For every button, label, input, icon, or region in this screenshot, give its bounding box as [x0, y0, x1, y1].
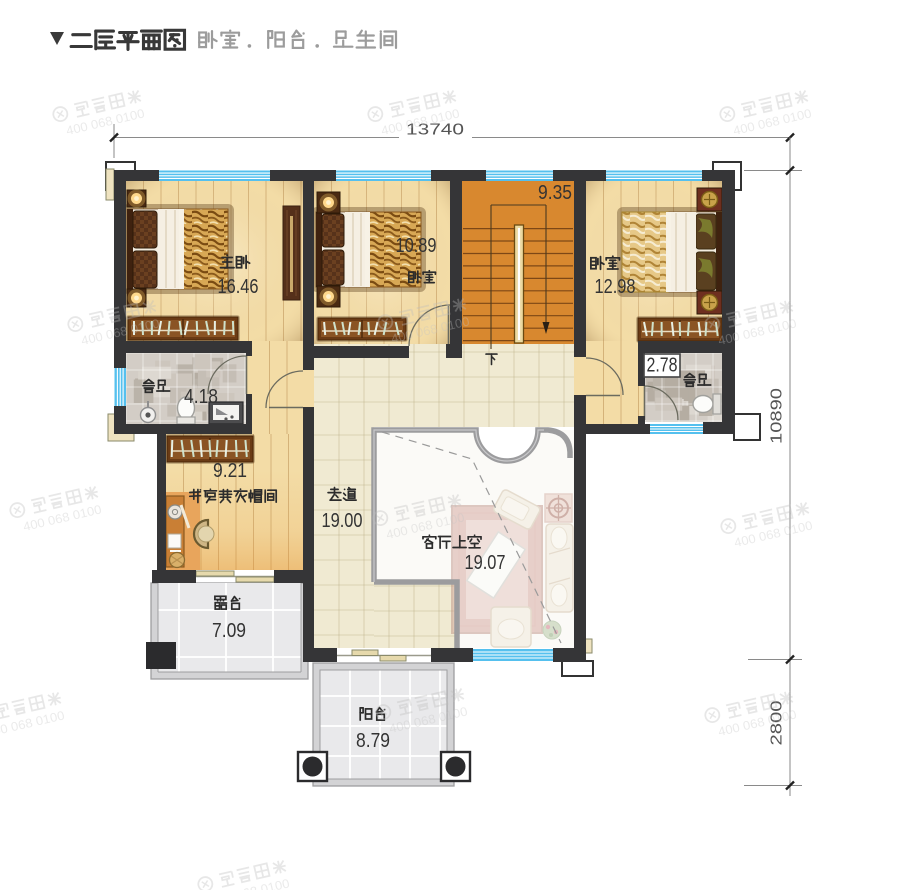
svg-text:10.89: 10.89 [396, 235, 437, 257]
svg-text:7.09: 7.09 [212, 620, 246, 642]
svg-text:16.46: 16.46 [218, 276, 259, 298]
svg-text:2.78: 2.78 [647, 355, 678, 377]
svg-text:8.79: 8.79 [356, 730, 390, 752]
svg-text:19.00: 19.00 [322, 510, 363, 532]
svg-text:19.07: 19.07 [465, 552, 506, 574]
svg-text:10890: 10890 [769, 388, 786, 444]
svg-text:9.35: 9.35 [538, 182, 572, 204]
svg-text:9.21: 9.21 [213, 460, 247, 482]
svg-text:4.18: 4.18 [184, 386, 218, 408]
svg-text:12.98: 12.98 [595, 276, 636, 298]
